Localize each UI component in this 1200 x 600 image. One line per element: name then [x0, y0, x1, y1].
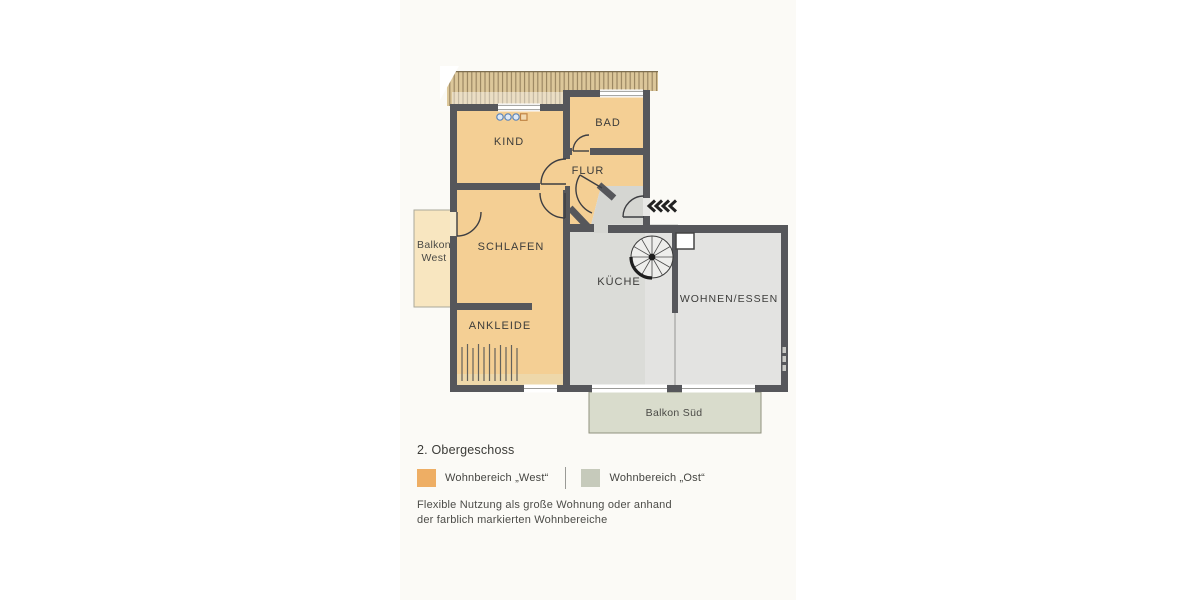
label-kueche: KÜCHE: [597, 276, 641, 288]
label-balkon-sued: Balkon Süd: [646, 407, 703, 419]
floor-title: 2. Obergeschoss: [417, 443, 777, 457]
label-ankleide: ANKLEIDE: [469, 320, 531, 332]
page: KIND BAD FLUR SCHLAFEN ANKLEIDE KÜCHE WO…: [0, 0, 1200, 600]
label-schlafen: SCHLAFEN: [478, 241, 545, 253]
label-balkon-west-1: Balkon: [417, 239, 451, 251]
legend-label-west: Wohnbereich „West“: [445, 472, 548, 484]
usage-note-line2: der farblich markierten Wohnbereiche: [417, 513, 777, 528]
room-schlafen-ankleide: [453, 186, 568, 392]
label-wohnen-essen: WOHNEN/ESSEN: [680, 293, 778, 305]
legend-row: Wohnbereich „West“ Wohnbereich „Ost“: [417, 468, 777, 488]
spiral-staircase: [631, 236, 673, 278]
legend-label-ost: Wohnbereich „Ost“: [609, 472, 705, 484]
legend-swatch-ost: [581, 469, 600, 487]
wall-stamp-marks: [783, 347, 787, 371]
label-kind: KIND: [494, 136, 524, 148]
legend-divider: [565, 467, 566, 489]
usage-note-line1: Flexible Nutzung als große Wohnung oder …: [417, 498, 777, 513]
legend-swatch-west: [417, 469, 436, 487]
entry-chevrons-icon: [649, 201, 676, 212]
label-balkon-west-2: West: [422, 252, 447, 264]
label-flur: FLUR: [572, 165, 605, 177]
label-bad: BAD: [595, 117, 621, 129]
legend: 2. Obergeschoss Wohnbereich „West“ Wohnb…: [417, 443, 777, 529]
usage-note: Flexible Nutzung als große Wohnung oder …: [417, 498, 777, 529]
chimney-niche: [676, 233, 694, 249]
